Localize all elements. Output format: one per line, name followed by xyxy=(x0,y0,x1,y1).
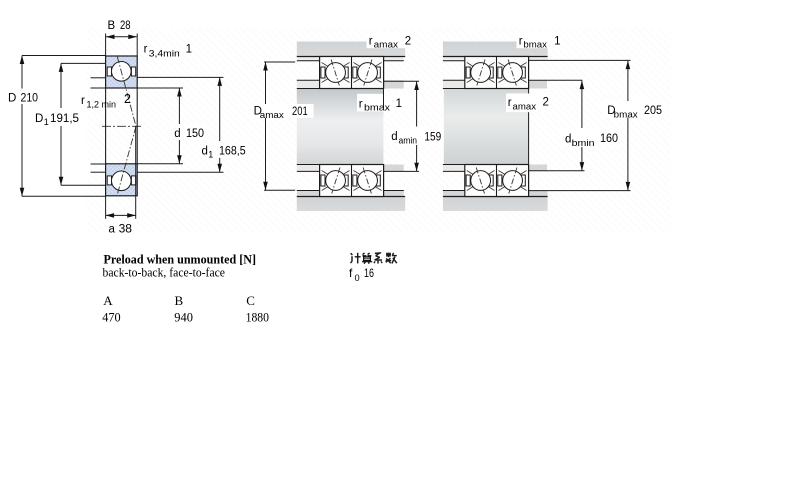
svg-text:A: A xyxy=(103,293,113,308)
svg-text:r: r xyxy=(81,95,85,107)
svg-text:back-to-back, face-to-face: back-to-back, face-to-face xyxy=(103,265,226,280)
svg-text:bmax: bmax xyxy=(523,40,547,50)
svg-text:1: 1 xyxy=(208,150,213,160)
svg-text:1880: 1880 xyxy=(246,309,269,324)
svg-text:D: D xyxy=(8,93,16,105)
svg-text:470: 470 xyxy=(102,309,120,324)
svg-text:160: 160 xyxy=(600,133,618,145)
svg-text:940: 940 xyxy=(174,309,193,324)
svg-text:D: D xyxy=(35,113,43,125)
svg-text:a: a xyxy=(109,223,116,235)
svg-text:28: 28 xyxy=(120,20,131,32)
svg-text:2: 2 xyxy=(124,92,131,106)
svg-text:amin: amin xyxy=(399,136,418,146)
svg-text:B: B xyxy=(175,293,184,308)
svg-text:168,5: 168,5 xyxy=(219,146,246,158)
svg-text:1: 1 xyxy=(186,44,192,56)
svg-text:C: C xyxy=(246,293,255,308)
svg-text:205: 205 xyxy=(644,105,662,117)
svg-text:2: 2 xyxy=(405,36,411,48)
svg-text:bmax: bmax xyxy=(364,103,391,113)
svg-text:159: 159 xyxy=(424,132,441,144)
svg-text:191,5: 191,5 xyxy=(50,113,79,125)
svg-text:bmin: bmin xyxy=(572,138,595,148)
svg-text:201: 201 xyxy=(292,106,308,118)
svg-text:d: d xyxy=(565,134,571,146)
svg-text:r: r xyxy=(144,44,148,56)
svg-text:16: 16 xyxy=(364,266,374,280)
svg-text:bmax: bmax xyxy=(614,109,639,119)
svg-text:B: B xyxy=(108,20,116,32)
svg-text:3,4min: 3,4min xyxy=(149,49,180,59)
svg-text:r: r xyxy=(359,99,363,111)
svg-text:d: d xyxy=(174,128,180,140)
svg-text:1: 1 xyxy=(554,36,560,48)
svg-text:r: r xyxy=(508,97,512,109)
svg-text:amax: amax xyxy=(513,102,537,112)
svg-text:1: 1 xyxy=(396,98,402,110)
svg-text:r: r xyxy=(519,36,523,48)
svg-text:r: r xyxy=(369,36,373,48)
svg-text:2: 2 xyxy=(543,97,549,109)
svg-text:1: 1 xyxy=(44,117,49,127)
svg-text:d: d xyxy=(202,146,208,158)
svg-text:amax: amax xyxy=(374,40,399,50)
svg-text:210: 210 xyxy=(21,93,39,105)
svg-text:38: 38 xyxy=(119,223,132,235)
svg-text:1,2 min: 1,2 min xyxy=(87,100,117,110)
svg-text:amax: amax xyxy=(260,110,285,120)
svg-text:0: 0 xyxy=(355,273,360,283)
svg-text:d: d xyxy=(391,131,397,143)
svg-text:150: 150 xyxy=(186,128,204,140)
